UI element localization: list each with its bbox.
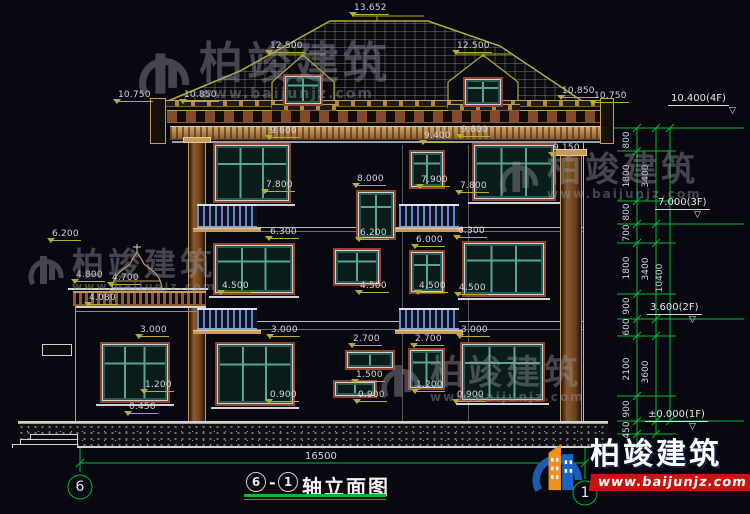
dim-label: 9.150 [551, 143, 582, 155]
window [345, 350, 395, 370]
window-sill [458, 298, 550, 300]
wing-band-bottom [75, 311, 206, 312]
dim-label: 4.500 [417, 281, 448, 293]
company-logo-icon [528, 438, 584, 500]
elevation-drawing-canvas: 13.65212.50012.50010.75010.85010.85010.7… [0, 0, 750, 514]
window-glazing [288, 79, 318, 101]
dim-label: 9.600 [459, 125, 490, 137]
dim-label: 0.450 [127, 402, 158, 414]
level-marker-label: 10.400(4F) [668, 93, 729, 106]
balcony-railing [197, 204, 257, 228]
dim-label: 2.700 [413, 334, 444, 346]
cornice-band [170, 126, 602, 140]
window-sill [468, 202, 560, 204]
balcony-slab [193, 228, 261, 232]
overall-width-dimension: 16500 [305, 451, 337, 462]
chain-segment-label: 800 [622, 203, 632, 220]
chain-total-label: 3400 [641, 165, 651, 188]
wing-band-top [75, 306, 206, 308]
level-marker-label: 3.600(2F) [647, 302, 702, 315]
dim-label: 6.000 [414, 235, 445, 247]
window-glazing [338, 253, 376, 281]
window-sill [211, 407, 299, 409]
right-pilaster [560, 153, 582, 421]
chain-total-label: 3600 [641, 361, 651, 384]
cornice-left-cap [150, 98, 166, 144]
dim-label: 4.500 [220, 281, 251, 293]
eave-tile-band [163, 100, 603, 107]
dentil-band [167, 110, 603, 123]
dim-label: 13.652 [352, 3, 389, 15]
company-logo-url: www.baijunjz.com [589, 474, 750, 491]
dim-label: 0.900 [268, 390, 299, 402]
title-axis-start-bubble: 6 [246, 472, 266, 492]
dim-label: 2.700 [351, 334, 382, 346]
level-triangle-icon [689, 423, 696, 432]
window [100, 342, 170, 403]
dim-label: 1.200 [143, 380, 174, 392]
title-underline-thick [244, 494, 386, 497]
chain-segment-label: 800 [622, 131, 632, 148]
wing-left-edge [75, 306, 76, 421]
dim-label: 4.700 [110, 273, 141, 285]
left-pilaster-capital [183, 137, 211, 143]
wing-coping [68, 288, 208, 290]
dim-label: 8.000 [355, 174, 386, 186]
chain-segment-label: 600 [622, 318, 632, 335]
dim-label: 6.200 [50, 229, 81, 241]
center-bay-left-edge [402, 145, 403, 421]
title-dash: - [269, 473, 276, 492]
dim-label: 3.000 [269, 325, 300, 337]
level-marker-label: 7.000(3F) [655, 197, 710, 210]
dim-label: 4.500 [457, 283, 488, 295]
chain-segment-label: 1800 [622, 257, 632, 280]
axis-bubble-6: 6 [68, 475, 92, 499]
dim-label: 1.500 [354, 370, 385, 382]
window-glazing [350, 355, 390, 365]
window [283, 74, 323, 106]
dim-label: 0.900 [356, 390, 387, 402]
title-underline-thin [244, 499, 386, 500]
turret-finial [133, 244, 141, 252]
dim-label: 7.800 [264, 180, 295, 192]
dim-label: 6.300 [456, 226, 487, 238]
window-glazing [468, 82, 498, 102]
chain-segment-label: 900 [622, 297, 632, 314]
dim-label: 12.500 [268, 41, 305, 53]
dim-label: 10.750 [116, 90, 153, 102]
dim-label: 12.500 [455, 41, 492, 53]
chain-segment-label: 2100 [622, 358, 632, 381]
balcony-railing [399, 308, 459, 330]
dim-label: 10.850 [182, 90, 219, 102]
floor-line-2f [200, 321, 583, 322]
level-triangle-icon [729, 107, 736, 116]
dim-label: 1.200 [414, 380, 445, 392]
wall-bracket [42, 344, 72, 356]
window [463, 77, 503, 107]
chain-overall-label: 10400 [655, 264, 665, 293]
cornice-right-cap [600, 98, 614, 144]
level-triangle-icon [689, 316, 696, 325]
company-logo-brand: 柏竣建筑 [590, 438, 750, 471]
chain-total-label: 3400 [641, 258, 651, 281]
dim-label: 6.200 [358, 228, 389, 240]
dim-label: 7.900 [419, 175, 450, 187]
chain-segment-label: 900 [622, 400, 632, 417]
left-pilaster [188, 141, 206, 421]
main-roof [163, 21, 585, 103]
dim-label: 3.000 [138, 325, 169, 337]
company-logo: 柏竣建筑 www.baijunjz.com [528, 438, 750, 500]
dim-label: 6.300 [268, 227, 299, 239]
dim-label: 4.080 [87, 293, 118, 305]
axis-bubble-6-label: 6 [76, 479, 85, 495]
chain-segment-label: 700 [622, 224, 632, 241]
dim-label: 4.800 [74, 270, 105, 282]
title-axis-start: 6 [252, 475, 260, 489]
level-triangle-icon [694, 211, 701, 220]
stone-base [18, 423, 608, 448]
dim-label: 3.000 [459, 325, 490, 337]
balcony-railing [197, 308, 257, 330]
dim-label: 9.400 [422, 131, 453, 143]
title-axis-end-bubble: 1 [278, 472, 298, 492]
balcony-slab [193, 330, 261, 334]
window [213, 143, 291, 203]
title-axis-end: 1 [284, 475, 292, 489]
wall-right-edge [583, 143, 584, 421]
dim-label: 10.750 [592, 91, 629, 103]
dim-label: 4.500 [358, 281, 389, 293]
dim-label: 7.800 [458, 181, 489, 193]
balcony-slab [395, 228, 463, 232]
balcony-railing [399, 204, 459, 228]
chain-segment-label: 1800 [622, 165, 632, 188]
dim-label: 9.600 [268, 126, 299, 138]
level-marker-label: ±0.000(1F) [645, 409, 708, 422]
step-3 [12, 444, 78, 448]
dim-label: 0.900 [455, 390, 486, 402]
window-sill [456, 403, 549, 405]
